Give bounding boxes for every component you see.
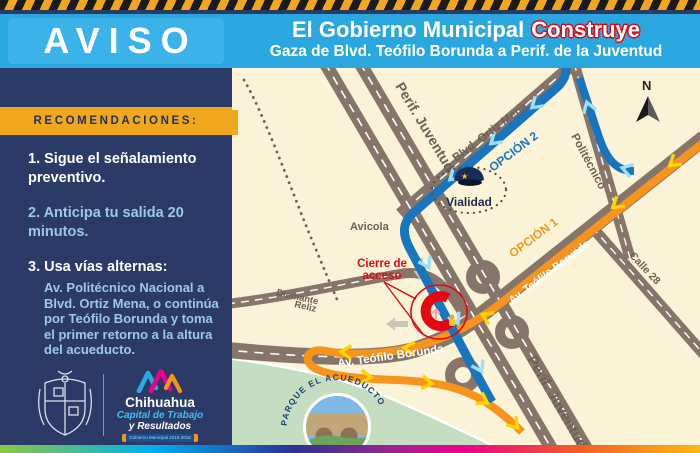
cap-star: ★ (461, 172, 468, 181)
label-avicola: Avicola (350, 221, 390, 233)
recommendations-banner-text: RECOMENDACIONES: (34, 115, 199, 127)
crest-castle (54, 388, 63, 396)
footer-gradient-bar (0, 445, 700, 453)
aviso-badge: AVISO (8, 18, 224, 64)
map-canvas: Cierre de acceso PARQUE EL ACUEDUCTO (232, 68, 700, 445)
road-calle28 (592, 227, 700, 358)
recommendation-1: 1. Sigue el señalamiento preventivo. (28, 150, 220, 188)
north-label: N (642, 78, 651, 93)
lane-arrow-left (386, 318, 408, 331)
north-arrow: N (636, 78, 660, 122)
header-titles: El Gobierno MunicipalConstruye Gaza de B… (232, 14, 700, 68)
aviso-text: AVISO (34, 20, 197, 62)
recommendations-banner: RECOMENDACIONES: (0, 107, 232, 135)
closure-label-line1: Cierre de (357, 258, 407, 270)
worker-icon (450, 315, 455, 320)
header-subtitle: Gaza de Blvd. Teófilo Borunda a Perif. d… (232, 42, 700, 62)
closure-label-line2: acceso (362, 270, 401, 282)
chihuahua-logo: Chihuahua Capital de Trabajo y Resultado… (112, 368, 208, 442)
hazard-stripe (0, 0, 700, 10)
vialidad-label: Vialidad (446, 195, 492, 209)
recommendations-sidebar: RECOMENDACIONES: 1. Sigue el señalamient… (0, 68, 232, 445)
city-crest (32, 369, 98, 441)
detour-map: Cierre de acceso PARQUE EL ACUEDUCTO (232, 68, 700, 445)
north-arrow-light (648, 96, 660, 122)
header-bar: AVISO El Gobierno MunicipalConstruye Gaz… (0, 14, 700, 68)
logo-city-name: Chihuahua (112, 396, 208, 410)
logo-slogan-2: y Resultados (112, 421, 208, 432)
logo-divider (103, 374, 104, 436)
header-title: El Gobierno MunicipalConstruye (232, 18, 700, 42)
title-regular: El Gobierno Municipal (292, 17, 524, 42)
map-edge-marker (224, 110, 238, 135)
north-arrow-dark (636, 96, 648, 122)
dotted-trail (244, 80, 339, 304)
recommendation-2: 2. Anticipa tu salida 20 minutos. (28, 204, 206, 242)
recommendation-3-title: 3. Usa vías alternas: (28, 258, 220, 277)
worker-body (449, 320, 455, 327)
recommendation-3-detail: Av. Politécnico Nacional a Blvd. Ortiz M… (44, 280, 222, 358)
title-accent: Construye (531, 17, 640, 42)
crest-castle-2 (69, 407, 78, 415)
footer-logos: Chihuahua Capital de Trabajo y Resultado… (0, 368, 232, 442)
crest-quarters (45, 383, 85, 435)
aqueduct-structure (302, 413, 372, 435)
logo-slogan-1: Capital de Trabajo (112, 410, 208, 421)
label-perif-bottom: Perif. Juventud (524, 353, 590, 445)
chihuahua-m-mark (133, 368, 187, 393)
logo-ribbon: Gobierno Municipal 2016-2018 (122, 434, 198, 442)
construction-notice-poster: AVISO El Gobierno MunicipalConstruye Gaz… (0, 0, 700, 453)
